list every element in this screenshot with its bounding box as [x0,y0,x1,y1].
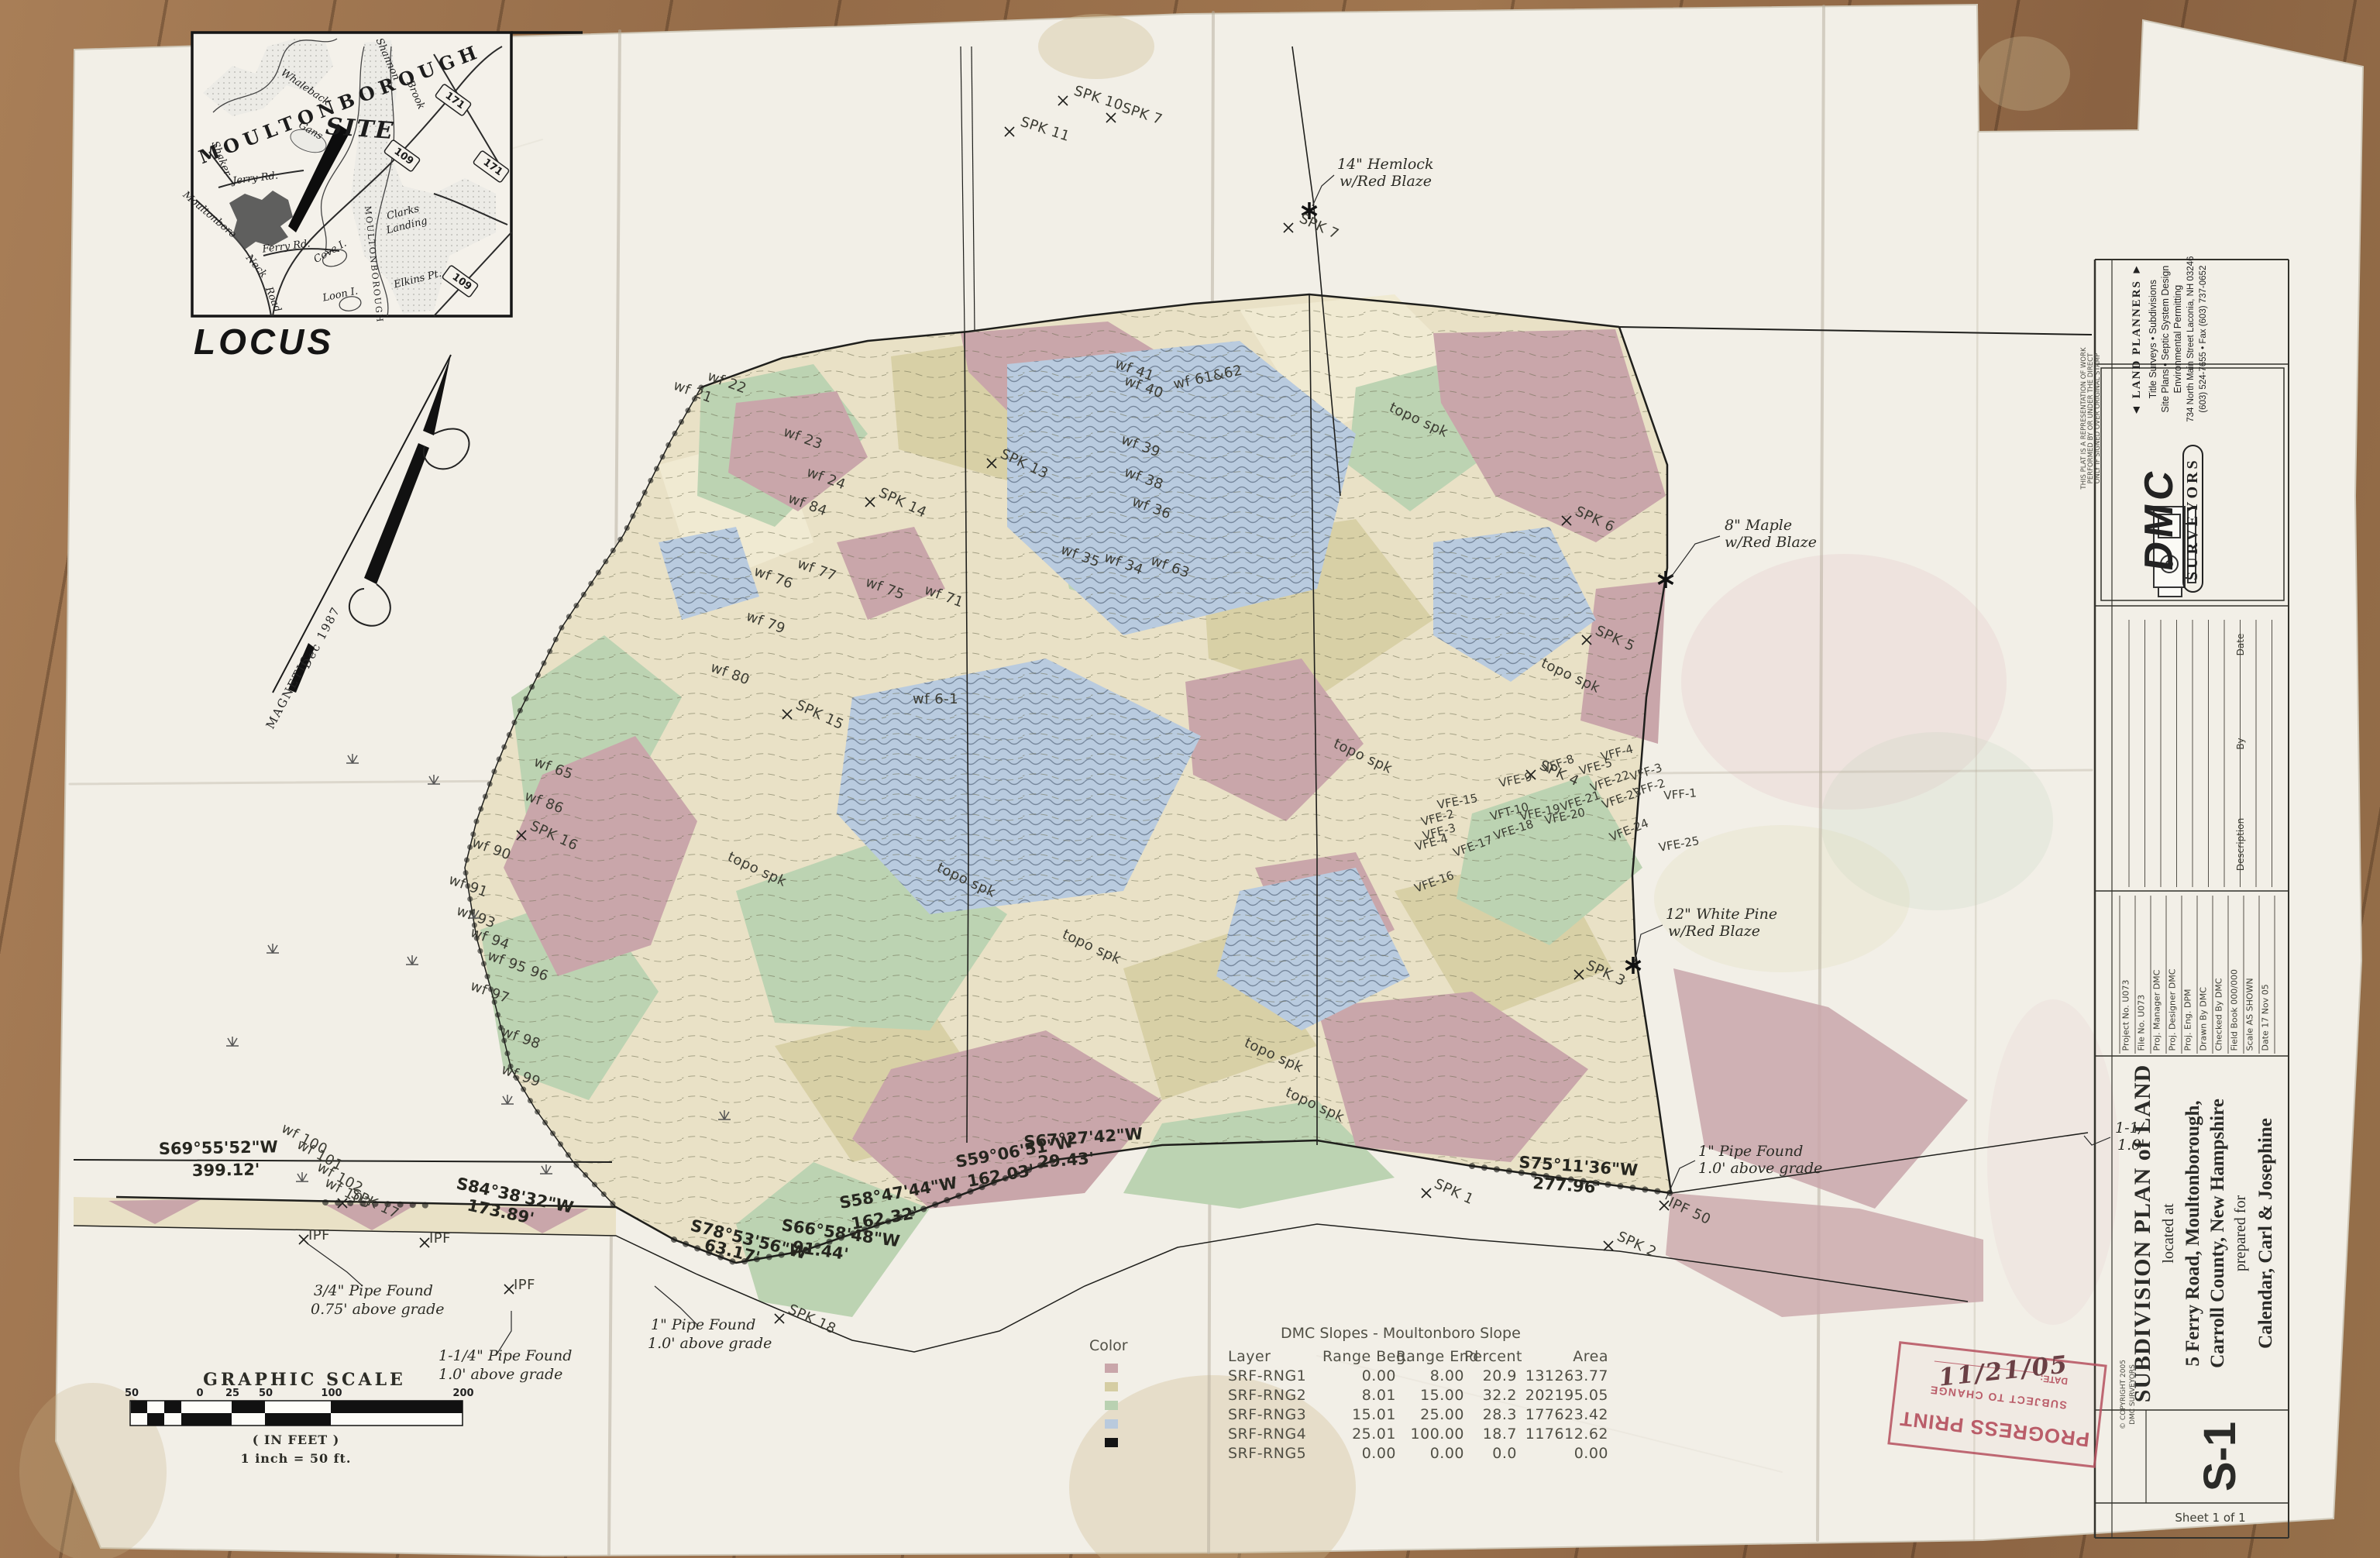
map-label: IPF [308,1227,330,1243]
plan-title-line: Calendar, Carl & Josephine [2255,1032,2277,1435]
legend-swatch-SRF-RNG2 [1105,1382,1118,1391]
map-label: 12" White Pine [1666,906,1777,923]
slope-table-row: SRF-RNG10.008.0020.9131263.77 [1228,1367,1608,1387]
inset-label: SITE [325,113,395,145]
slope-table-rows: LayerRange Beg.Range EndPercentAreaSRF-R… [1228,1348,1608,1464]
slope-table-title: DMC Slopes - Moultonboro Slope [1281,1325,1608,1342]
scale-tick: 25 [225,1388,239,1399]
locus-title: LOCUS [194,321,334,363]
map-label: IPF [429,1230,451,1247]
map-label: 29.43' [1037,1149,1095,1171]
info-row: Checked By DMC [2214,896,2224,1051]
map-label: 0.75' above grade [311,1301,445,1318]
legend-swatch-SRF-RNG3 [1105,1401,1118,1410]
scale-tick: 100 [321,1388,342,1399]
sheet-number: S-1 [2193,1406,2248,1507]
scale-ratio: 1 inch = 50 ft. [240,1451,351,1466]
map-label: 1.0' above grade [439,1366,562,1383]
paper-stain [1977,36,2070,111]
color-legend: Color [1089,1337,1128,1447]
legend-title: Color [1089,1337,1128,1354]
map-label: IPF [514,1277,535,1293]
surveyor-firm-block: DMC SURVEYORS ◄ LAND PLANNERS ► Title Su… [2101,244,2237,593]
map-label: 1-1/4" Pipe Found [439,1347,572,1364]
info-row: File No. U073 [2137,896,2147,1051]
scale-tick: 50 [125,1388,139,1399]
info-row: Drawn By DMC [2199,896,2209,1051]
revision-header: By [2235,701,2246,786]
map-label: VFF-1 [1663,786,1697,803]
slope-table-row: SRF-RNG50.000.000.00.00 [1228,1445,1608,1464]
firm-address: 734 North Main Street Laconia, NH 03246 [2186,244,2196,434]
scale-tick: 50 [259,1388,273,1399]
info-row: Scale AS SHOWN [2245,896,2255,1051]
firm-phone: (603) 524-7655 • Fax (603) 737-0652 [2198,244,2209,434]
map-label: S69°55'52"W [159,1137,278,1158]
legend-swatch-SRF-RNG4 [1105,1419,1118,1429]
copyright-line: © COPYRIGHT 2005 [2120,1336,2127,1453]
map-label: 1.0' above grade [1698,1160,1822,1177]
map-label: w/Red Blaze [1725,534,1817,551]
firm-service: Environmental Permitting [2172,244,2184,434]
slope-table-row: SRF-RNG28.0115.0032.2202195.05 [1228,1387,1608,1406]
map-label: wf 6-1 [913,691,958,707]
firm-tagline: SURVEYORS [2182,445,2203,593]
scale-tick: 200 [452,1388,473,1399]
stamp-line1: PROGRESS PRINT [1898,1406,2091,1452]
photo-of-survey-plan: MOULTONBOROUGHSITEShannonBrookWhalebackG… [0,0,2380,1558]
legend-swatches [1089,1364,1128,1447]
info-row: Project No. U073 [2121,896,2131,1051]
tb-disclaimer-line: ONLY IF SIGNED OVER ORIGINAL STAMP [2094,302,2102,535]
scale-tick: 0 [196,1388,203,1399]
slope-table: DMC Slopes - Moultonboro Slope LayerRang… [1228,1325,1608,1464]
map-label: 1" Pipe Found [1698,1143,1803,1160]
scale-units: ( IN FEET ) [253,1432,340,1447]
plan-drawing: MOULTONBOROUGHSITEShannonBrookWhalebackG… [0,0,2380,1558]
dmc-logo: DMC [2136,442,2182,596]
map-label: 8" Maple [1725,517,1792,534]
map-label: 1" Pipe Found [651,1316,755,1333]
plan-title-line: located at [2159,1032,2178,1435]
map-label: w/Red Blaze [1340,173,1432,190]
paper-stain [1038,14,1154,79]
info-row: Proj. Designer DMC [2168,896,2178,1051]
map-label: 399.12' [192,1160,260,1180]
slope-table-header: LayerRange Beg.Range EndPercentArea [1228,1348,1608,1367]
map-label: 14" Hemlock [1337,156,1433,173]
slope-table-row: SRF-RNG315.0125.0028.3177623.42 [1228,1406,1608,1426]
firm-service: Site Plans • Septic System Design [2159,244,2172,434]
map-label: 1.0' above grade [648,1335,772,1352]
legend-swatch-SRF-RNG1 [1105,1364,1118,1373]
info-row: Field Book 000/000 [2230,896,2240,1051]
revision-header: Description [2235,802,2246,887]
color-wash [1987,999,2119,1325]
info-row: Proj. Eng. DPM [2183,896,2193,1051]
info-row: Proj. Manager DMC [2152,896,2162,1051]
info-row: Date 17 Nov 05 [2261,896,2271,1051]
plan-title-line: Carroll County, New Hampshire [2207,1032,2229,1435]
firm-services: Title Surveys • SubdivisionsSite Plans •… [2147,244,2184,434]
firm-planners: ◄ LAND PLANNERS ► [2131,244,2144,434]
slope-table-row: SRF-RNG425.01100.0018.7117612.62 [1228,1426,1608,1445]
firm-service: Title Surveys • Subdivisions [2147,244,2159,434]
map-label: w/Red Blaze [1668,923,1760,940]
copyright-line: DMC SURVEYORS [2129,1336,2137,1453]
plan-title-line: prepared for [2231,1032,2250,1435]
sheet-count: Sheet 1 of 1 [2129,1511,2292,1525]
map-label: 3/4" Pipe Found [314,1282,433,1299]
legend-swatch-SRF-RNG5 [1105,1438,1118,1447]
plan-title-line: 5 Ferry Road, Moultonborough, [2182,1032,2204,1435]
revision-header: Date [2235,602,2246,687]
